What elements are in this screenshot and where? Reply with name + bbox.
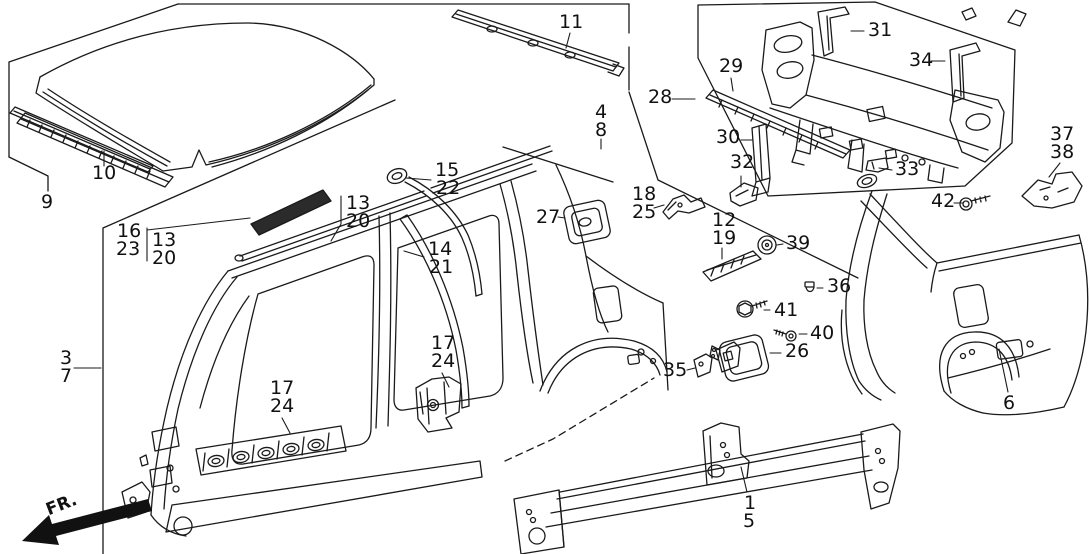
bulkhead-small-bracket <box>730 183 758 206</box>
callout-20-center: 20 <box>346 212 370 231</box>
callout-23: 23 <box>116 240 140 259</box>
callout-34: 34 <box>909 51 933 70</box>
side-sill-panel <box>514 423 900 554</box>
rear-bulkhead-assembly <box>762 8 1026 183</box>
callout-36: 36 <box>827 277 851 296</box>
callout-39: 39 <box>786 234 810 253</box>
roof-panel <box>36 23 374 171</box>
fr-direction-arrow-icon <box>22 499 152 545</box>
gutter-bracket-37-38 <box>1022 172 1082 208</box>
callout-8: 8 <box>595 121 607 140</box>
callout-42: 42 <box>931 192 955 211</box>
callout-9: 9 <box>41 193 53 212</box>
rear-roof-rail <box>452 10 624 76</box>
bolt-41 <box>737 301 767 317</box>
bulkhead-side-bracket <box>752 124 770 196</box>
fuel-filler-lid-26 <box>710 333 770 382</box>
callout-19: 19 <box>712 229 736 248</box>
callout-25: 25 <box>632 203 656 222</box>
clip-36 <box>805 282 814 292</box>
callout-41: 41 <box>774 301 798 320</box>
callout-29: 29 <box>719 57 743 76</box>
callout-40: 40 <box>810 324 834 343</box>
bracket-18-25 <box>663 195 705 219</box>
callout-7: 7 <box>60 367 72 386</box>
callout-38: 38 <box>1050 143 1074 162</box>
callout-24-center: 24 <box>431 352 455 371</box>
bezel-27 <box>563 199 612 245</box>
bulkhead-gusset-left <box>818 7 849 56</box>
callout-20-left: 20 <box>152 249 176 268</box>
bulkhead-clip <box>866 158 888 172</box>
pillar-base-stiffener <box>416 377 461 432</box>
callout-22: 22 <box>436 179 460 198</box>
bolt-42 <box>960 196 990 210</box>
callout-32: 32 <box>730 153 754 172</box>
callout-24-left: 24 <box>270 397 294 416</box>
callout-33: 33 <box>895 160 919 179</box>
callout-31: 31 <box>868 21 892 40</box>
grommet-39 <box>758 236 776 254</box>
callout-27: 27 <box>536 208 560 227</box>
callout-5: 5 <box>743 512 755 531</box>
callout-28: 28 <box>648 88 672 107</box>
callout-11: 11 <box>559 13 583 32</box>
gutter-strip-12-19 <box>703 251 761 281</box>
parts-diagram-canvas: 9 10 11 4 8 28 29 31 34 30 32 33 37 38 4… <box>0 0 1090 554</box>
body-side-panel-left <box>122 164 668 536</box>
callout-26: 26 <box>785 342 809 361</box>
callout-10: 10 <box>92 164 116 183</box>
callout-35: 35 <box>663 361 687 380</box>
callout-21: 21 <box>429 258 453 277</box>
callout-30: 30 <box>716 128 740 147</box>
diagram-line-art <box>0 0 1090 554</box>
callout-6: 6 <box>1003 394 1015 413</box>
callout-leader-lines <box>74 31 1060 492</box>
